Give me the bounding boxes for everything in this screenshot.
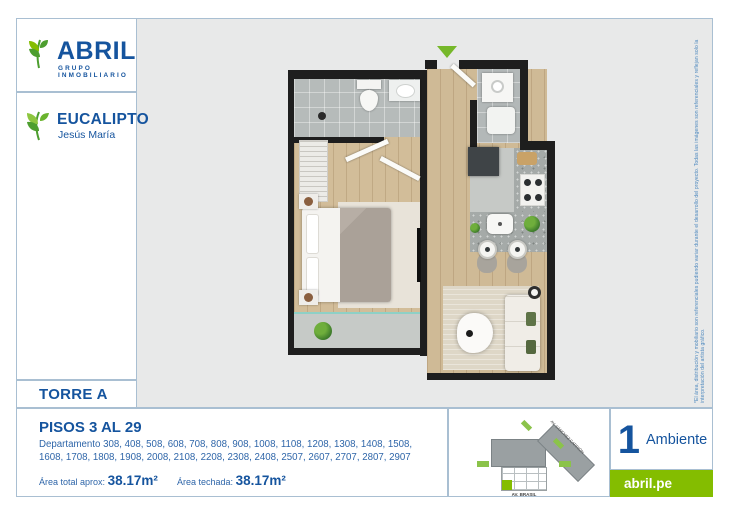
site-street-bottom: AV. BRASIL	[501, 492, 547, 497]
area-total-value: 38.17m²	[108, 473, 158, 488]
departments-list: Departamento 308, 408, 508, 608, 708, 80…	[39, 439, 431, 464]
project-district: Jesús María	[58, 129, 115, 141]
bed-blanket	[340, 208, 391, 302]
ambiente-label: Ambiente	[646, 432, 707, 448]
floors-title: PISOS 3 AL 29	[39, 419, 142, 436]
nightstand-2-decor	[304, 293, 313, 302]
tv	[417, 228, 421, 282]
ambiente-box: 1 Ambiente	[610, 408, 713, 470]
closet	[299, 140, 328, 202]
wall-right	[547, 141, 555, 380]
shower-head-icon	[318, 112, 326, 120]
site-tag-1	[521, 420, 532, 431]
entrance-arrow-icon	[437, 46, 457, 58]
wall-laundry-left	[470, 100, 477, 148]
area-total-label: Área total aprox:	[39, 477, 105, 487]
sofa	[505, 295, 540, 371]
washing-machine-drum	[491, 80, 504, 93]
area-roofed-value: 38.17m²	[236, 473, 286, 488]
site-tag-3	[477, 461, 489, 467]
wall-living-bottom	[427, 373, 555, 380]
ambiente-row: 1 Ambiente	[611, 409, 714, 471]
site-highlighted-unit	[502, 480, 512, 490]
wall-corridor-bedroom	[420, 70, 427, 356]
area-total: Área total aprox: 38.17m²	[39, 473, 158, 488]
fridge	[468, 147, 499, 176]
laundry-sink	[487, 107, 515, 134]
balcony-plant	[314, 322, 332, 340]
project-leaf-icon	[25, 111, 51, 141]
site-map-box: AV. SÁNCHEZ CARRIÓN AV. BRASIL	[448, 408, 610, 497]
coffee-table-decor	[466, 330, 473, 337]
floor-lamp-shade	[531, 289, 538, 296]
stove	[520, 174, 545, 206]
abril-logo-box: ABRIL GRUPO INMOBILIARIO	[16, 18, 137, 92]
website-bar[interactable]: abril.pe	[610, 470, 713, 497]
wall-laundry-right	[520, 60, 528, 148]
area-roofed-label: Área techada:	[177, 477, 233, 487]
abril-wordmark: ABRIL	[57, 37, 136, 66]
counter-plant	[470, 223, 480, 233]
area-roofed: Área techada: 38.17m²	[177, 473, 286, 488]
abril-leaf-icon	[27, 39, 51, 69]
floors-info-box: PISOS 3 AL 29 Departamento 308, 408, 508…	[16, 408, 448, 497]
legal-disclaimer: *El área, distribución y mobiliario son …	[694, 20, 710, 403]
abril-tagline: GRUPO INMOBILIARIO	[58, 65, 136, 79]
wall-entry-left	[425, 60, 437, 69]
website-link[interactable]: abril.pe	[610, 476, 672, 491]
site-building-main	[491, 439, 546, 467]
site-tag-4	[559, 461, 571, 467]
bar-stool-2	[508, 240, 527, 259]
cutting-board	[517, 152, 537, 165]
bar-stool-1	[478, 240, 497, 259]
wall-top-left	[288, 70, 425, 79]
sofa-pillow-2	[526, 340, 536, 354]
tower-box: TORRE A	[16, 380, 137, 408]
nightstand-1-decor	[304, 197, 313, 206]
project-logo-box: EUCALIPTO Jesús María	[16, 92, 137, 380]
kitchen-sink-drain	[498, 222, 502, 226]
toilet-tank	[357, 80, 381, 89]
wall-left	[288, 70, 294, 355]
island-plant	[524, 216, 540, 232]
bathroom-sink-basin	[396, 84, 415, 98]
wall-entry-right	[459, 60, 528, 69]
project-name: EUCALIPTO	[57, 111, 149, 129]
wall-balcony-bottom	[288, 348, 425, 355]
sofa-pillow-1	[526, 312, 536, 326]
ambiente-count: 1	[618, 420, 640, 460]
tower-label: TORRE A	[39, 386, 108, 403]
bed-pillow-1	[306, 214, 319, 254]
